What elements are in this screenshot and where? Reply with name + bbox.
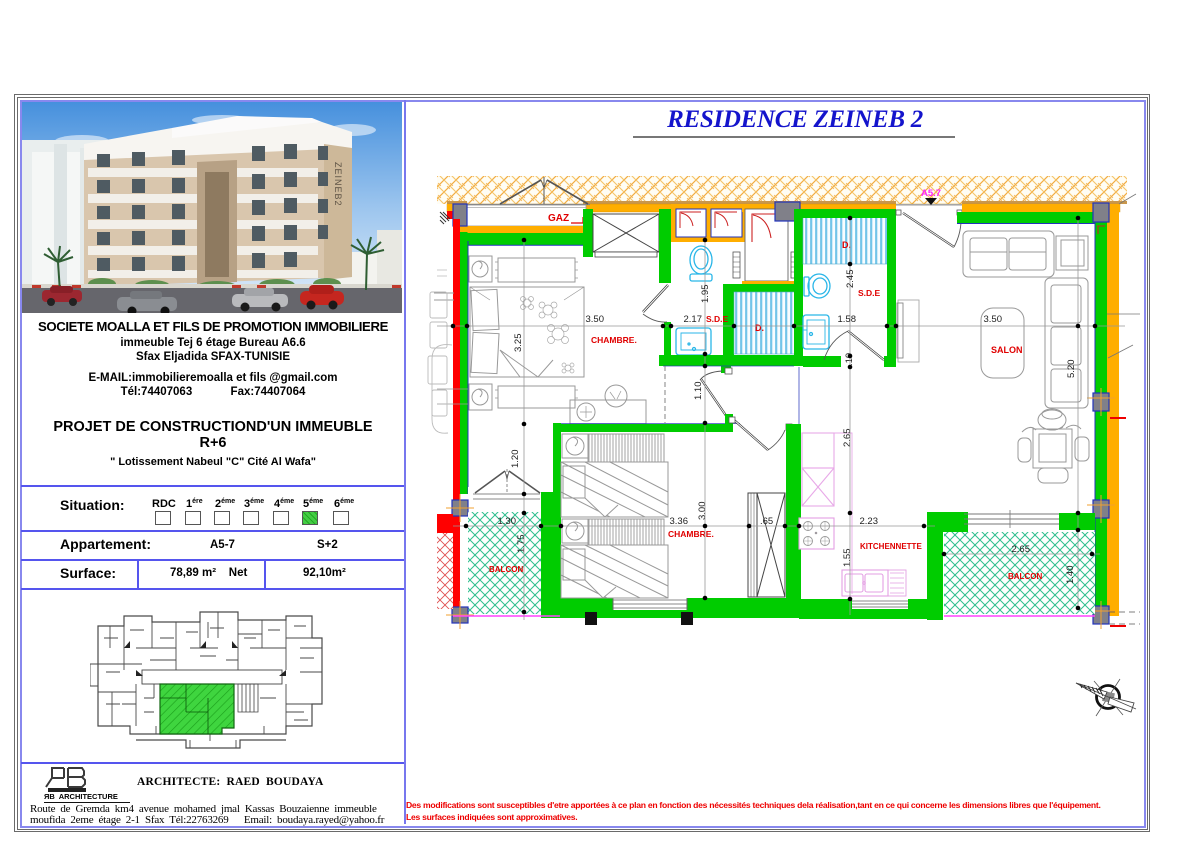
svg-text:CHAMBRE.: CHAMBRE.	[668, 529, 714, 539]
svg-text:S.D.E: S.D.E	[858, 288, 881, 298]
svg-text:A5.7: A5.7	[921, 188, 941, 199]
svg-text:2.23: 2.23	[860, 516, 879, 527]
svg-text:SALON: SALON	[991, 345, 1023, 355]
svg-text:1.10: 1.10	[693, 382, 704, 401]
svg-text:GAZ: GAZ	[548, 213, 569, 224]
svg-text:BALCON: BALCON	[1008, 572, 1042, 581]
svg-text:BALCON: BALCON	[489, 565, 523, 574]
svg-text:1.55: 1.55	[842, 549, 853, 568]
svg-text:.65: .65	[760, 516, 773, 527]
svg-text:S.D.E: S.D.E	[706, 314, 729, 324]
svg-text:3.00: 3.00	[697, 502, 708, 521]
svg-text:5.20: 5.20	[1066, 360, 1077, 379]
svg-text:3.25: 3.25	[513, 334, 524, 353]
svg-text:2.65: 2.65	[842, 429, 853, 448]
svg-text:3.36: 3.36	[670, 516, 689, 527]
svg-text:3.50: 3.50	[984, 314, 1003, 325]
svg-text:2.45: 2.45	[845, 270, 856, 289]
svg-text:2.65: 2.65	[1012, 544, 1031, 555]
svg-text:D.: D.	[755, 323, 764, 333]
svg-text:ZEINEB2: ZEINEB2	[333, 162, 343, 207]
svg-text:1.30: 1.30	[498, 516, 517, 527]
svg-text:1.75: 1.75	[516, 535, 527, 554]
svg-text:KITCHENNETTE: KITCHENNETTE	[860, 542, 922, 551]
svg-text:3.50: 3.50	[586, 314, 605, 325]
svg-text:1.58: 1.58	[838, 314, 857, 325]
svg-text:1.40: 1.40	[1065, 566, 1076, 585]
svg-text:1.20: 1.20	[510, 450, 521, 469]
svg-text:1.95: 1.95	[700, 285, 711, 304]
svg-text:2.17: 2.17	[684, 314, 703, 325]
svg-text:CHAMBRE.: CHAMBRE.	[591, 335, 637, 345]
